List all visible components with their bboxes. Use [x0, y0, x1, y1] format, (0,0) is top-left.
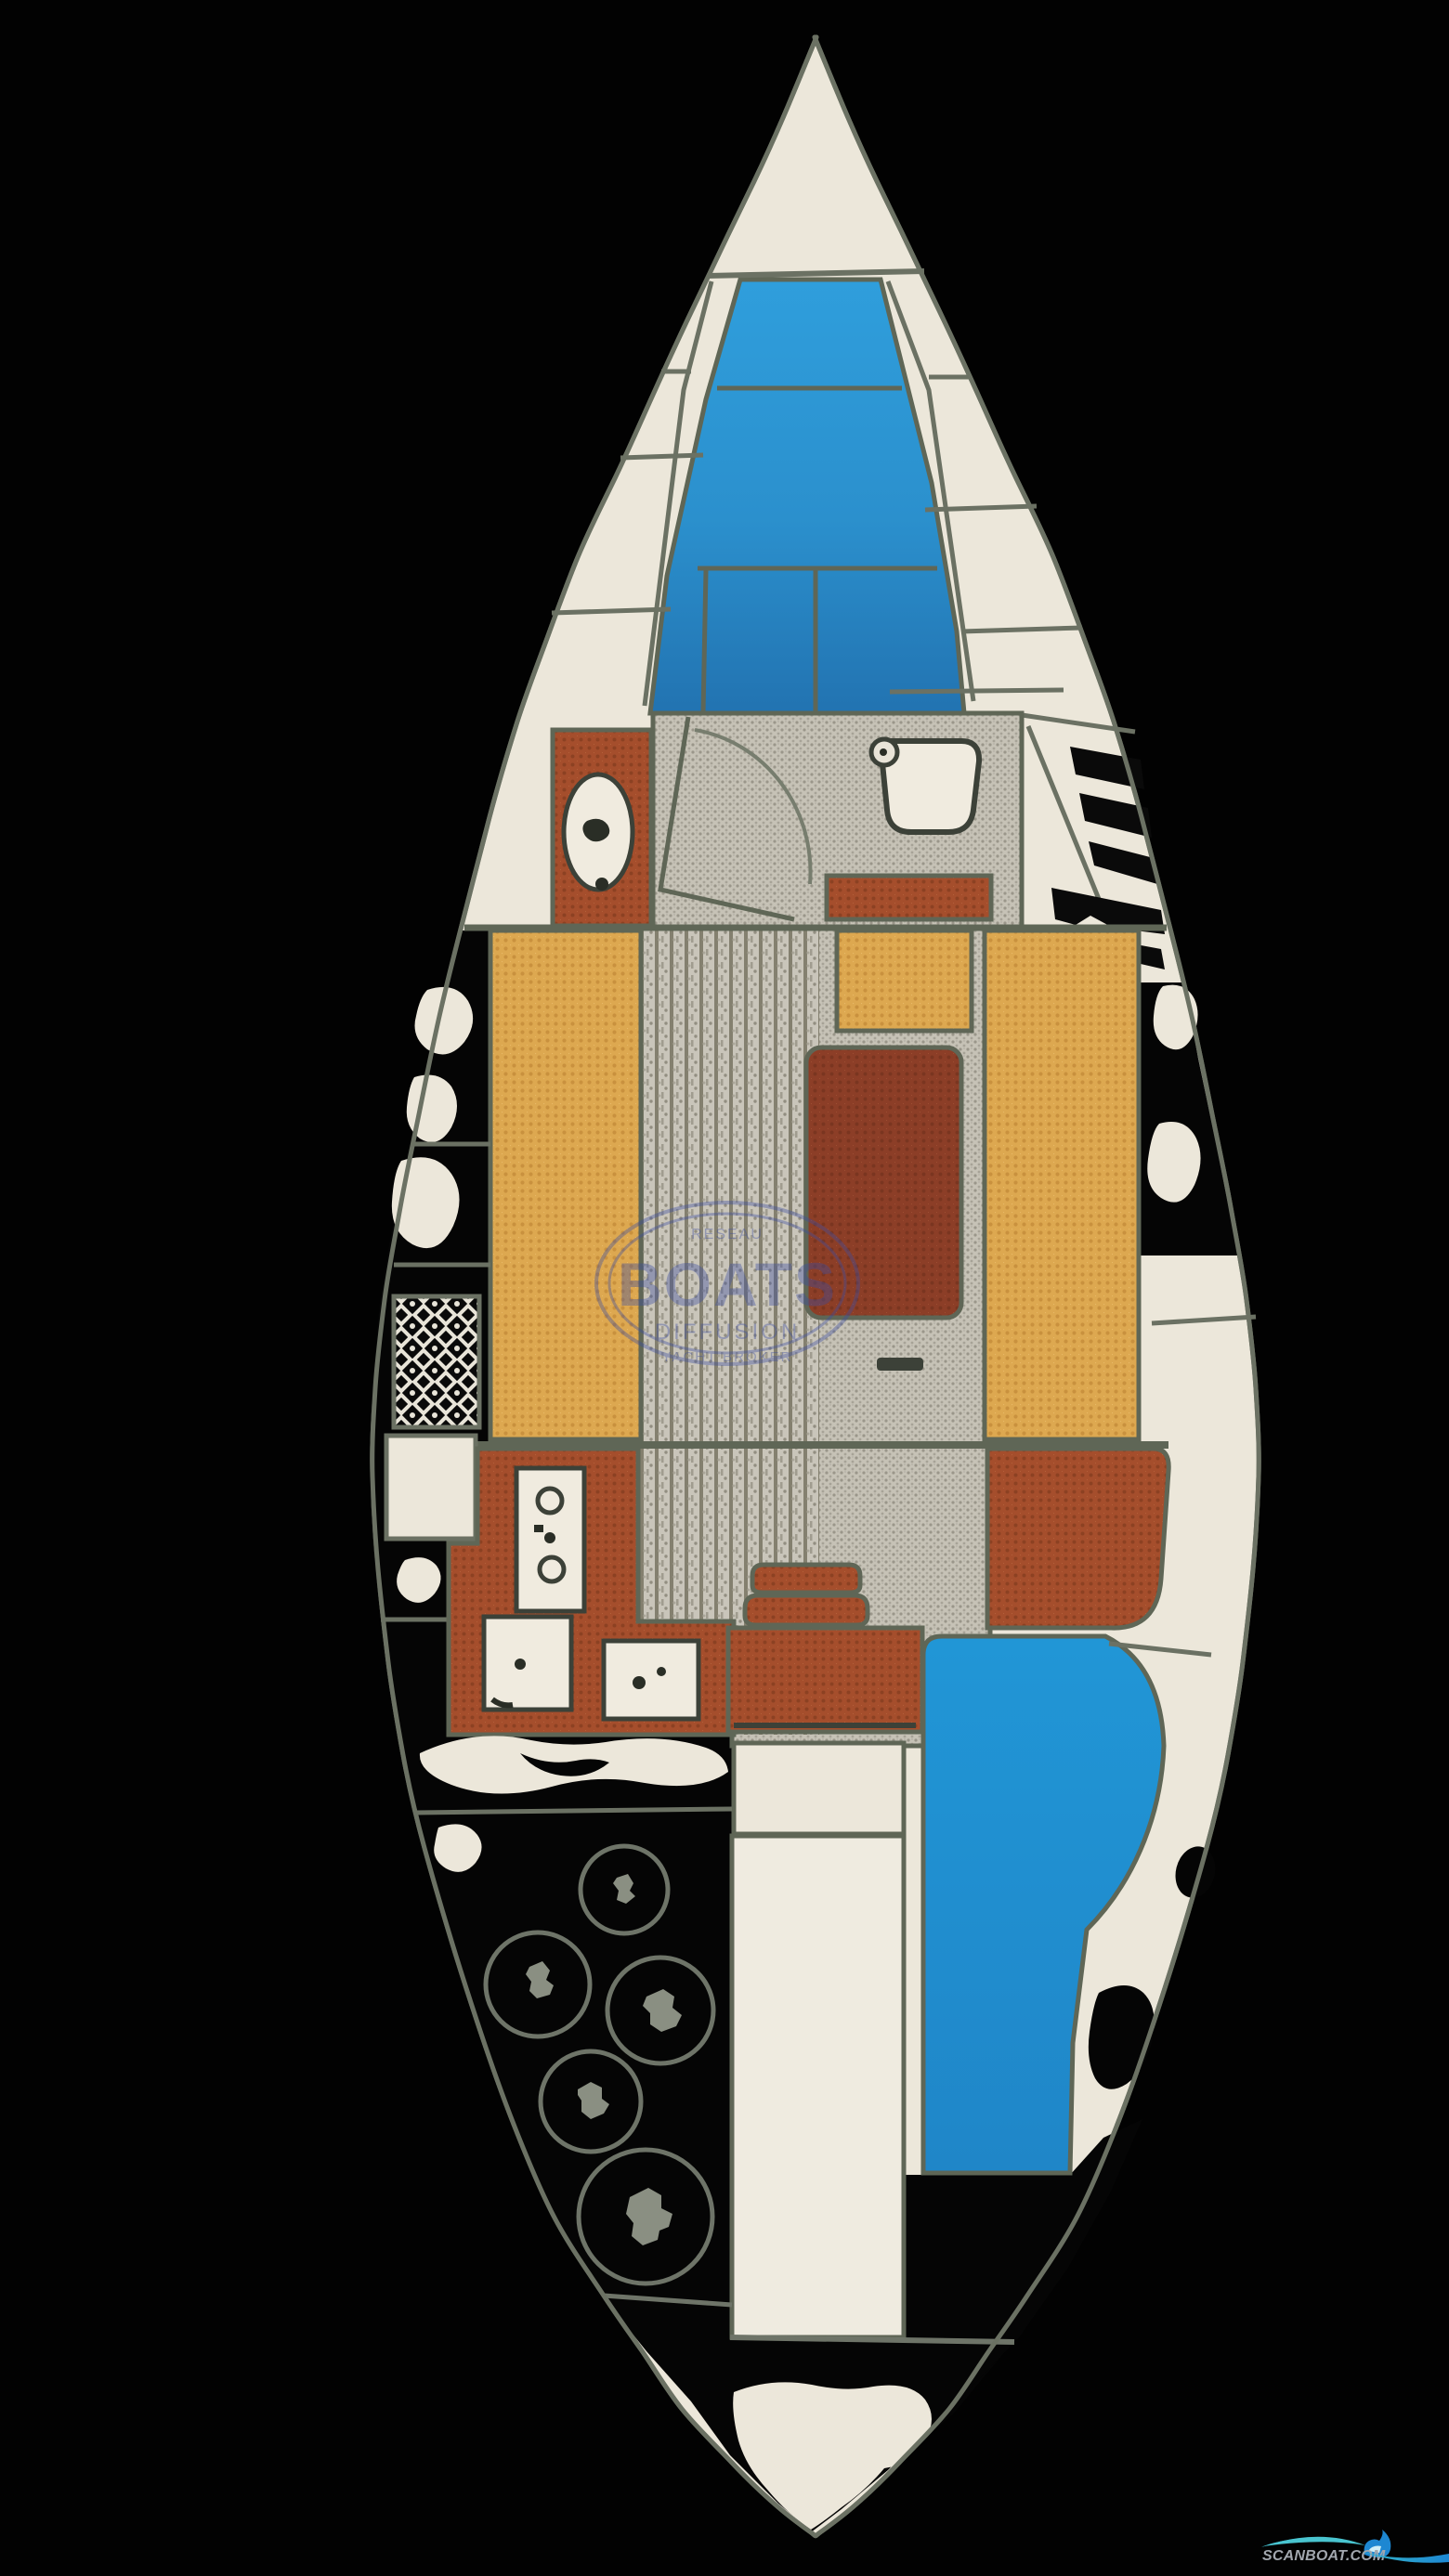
svg-text:RESEAU: RESEAU [691, 1227, 764, 1242]
svg-text:DIFFUSION: DIFFUSION [655, 1320, 800, 1345]
svg-text:BOATS: BOATS [618, 1250, 837, 1319]
svg-text:YACHT BROKER: YACHT BROKER [662, 1349, 793, 1365]
svg-text:SCANBOAT.COM: SCANBOAT.COM [1262, 2548, 1386, 2564]
